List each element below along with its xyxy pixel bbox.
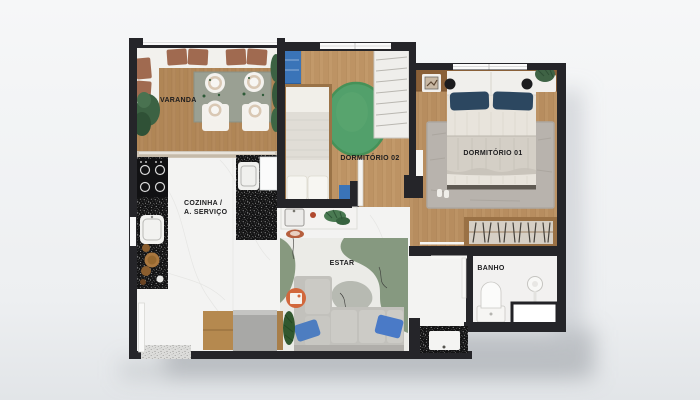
- svg-text:ESTAR: ESTAR: [330, 260, 355, 267]
- svg-text:A. SERVIÇO: A. SERVIÇO: [184, 209, 228, 216]
- svg-text:COZINHA /: COZINHA /: [184, 200, 222, 207]
- svg-text:DORMITÓRIO 01: DORMITÓRIO 01: [463, 148, 522, 157]
- svg-text:DORMITÓRIO 02: DORMITÓRIO 02: [340, 153, 399, 162]
- svg-text:BANHO: BANHO: [477, 265, 504, 272]
- svg-text:VARANDA: VARANDA: [160, 97, 197, 104]
